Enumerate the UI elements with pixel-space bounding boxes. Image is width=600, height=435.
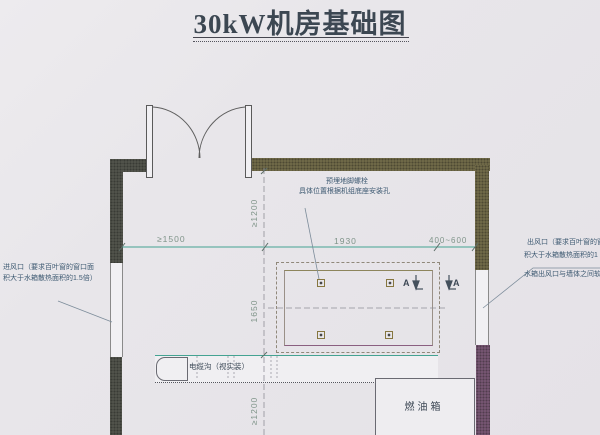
wall-right-lower	[476, 345, 490, 435]
foundation-drawing: 30kW机房基础图	[0, 0, 600, 435]
cable-trench-label: 电缆沟（视实装）	[189, 362, 249, 371]
wall-left-lower	[110, 357, 122, 435]
anchor-bolt-marker	[385, 331, 393, 339]
note-anchor-bolt-line2: 具体位置根据机组底座安装孔	[299, 187, 390, 196]
note-air-outlet-line3: 水箱出风口与墙体之间软	[524, 270, 600, 279]
door-arc-right	[199, 107, 245, 158]
dim-v-bottom: ≥1200	[249, 389, 261, 433]
anchor-bolt-marker	[386, 279, 394, 287]
wall-top-right	[249, 158, 490, 171]
dim-h-left: ≥1500	[157, 234, 186, 244]
note-air-outlet-line2: 积大于水箱散热面积的1	[524, 251, 598, 260]
note-air-inlet-line2: 积大于水箱散热面积的1.5倍）	[3, 274, 97, 283]
wall-left-upper	[110, 159, 123, 263]
drawing-title: 30kW机房基础图	[0, 2, 600, 41]
door-arc-left	[153, 107, 200, 158]
generator-foundation-inner	[284, 270, 433, 346]
air-outlet-louver-opening	[475, 270, 489, 345]
title-underline-2	[193, 41, 409, 42]
section-letter-left: A	[403, 278, 410, 288]
anchor-bolt-marker	[317, 279, 325, 287]
title-underline	[193, 37, 409, 38]
note-air-outlet-line1: 出风口（要求百叶窗的窗	[527, 238, 600, 247]
wall-right-upper	[475, 165, 489, 270]
door-leaf-right	[245, 105, 252, 178]
dim-v-top: ≥1200	[249, 191, 261, 235]
cable-trench-endcap	[156, 357, 188, 381]
air-inlet-louver-opening	[110, 263, 123, 357]
dim-v-mid: 1650	[249, 289, 261, 333]
air-inlet-leader	[58, 301, 112, 322]
anchor-bolt-marker	[317, 331, 325, 339]
dim-h-mid: 1930	[334, 236, 357, 246]
door-leaf-left	[146, 105, 153, 178]
dim-h-right: 400~600	[429, 236, 467, 245]
note-anchor-bolt-line1: 预埋地脚螺栓	[326, 177, 368, 186]
section-letter-right: A	[453, 278, 460, 288]
note-air-inlet-line1: 进风口（要求百叶窗的窗口面	[3, 263, 94, 272]
fuel-tank-label: 燃油箱	[375, 398, 473, 413]
